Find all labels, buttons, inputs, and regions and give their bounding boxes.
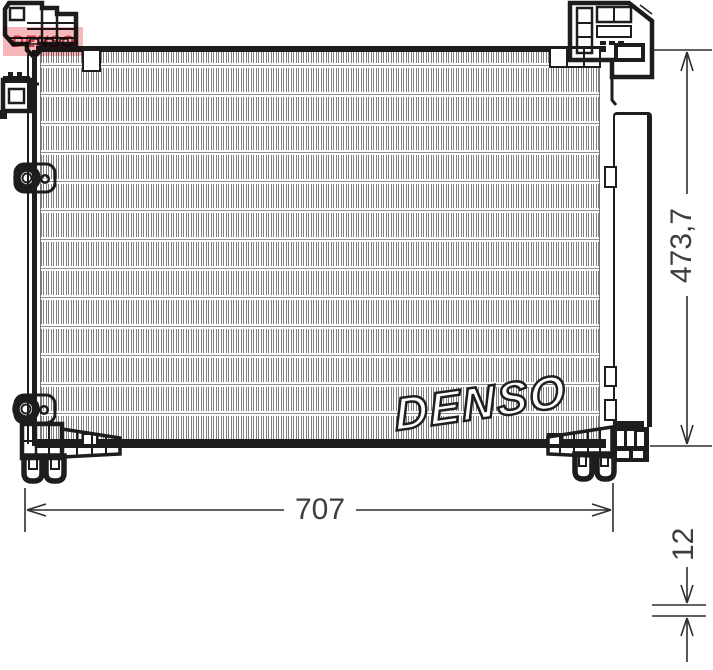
dimension-depth [652,560,706,662]
dimension-height-label: 473,7 [663,194,701,296]
denso-logo: DENSO [3,27,83,56]
pipe-fitting-upper [15,164,55,192]
dimension-width-label: 707 [284,493,356,527]
dimension-depth-label: 12 [665,521,703,567]
denso-logo-text: DENSO [12,32,75,52]
pipe-fitting-lower [15,395,55,423]
bottom-right-bracket [548,427,649,479]
top-right-bracket [570,3,652,105]
left-side-bracket [0,72,39,119]
drawing-linework [0,0,713,670]
bottom-left-bracket [22,424,120,481]
technical-drawing-canvas: DENSO DENSO 707 473,7 12 [0,0,713,670]
